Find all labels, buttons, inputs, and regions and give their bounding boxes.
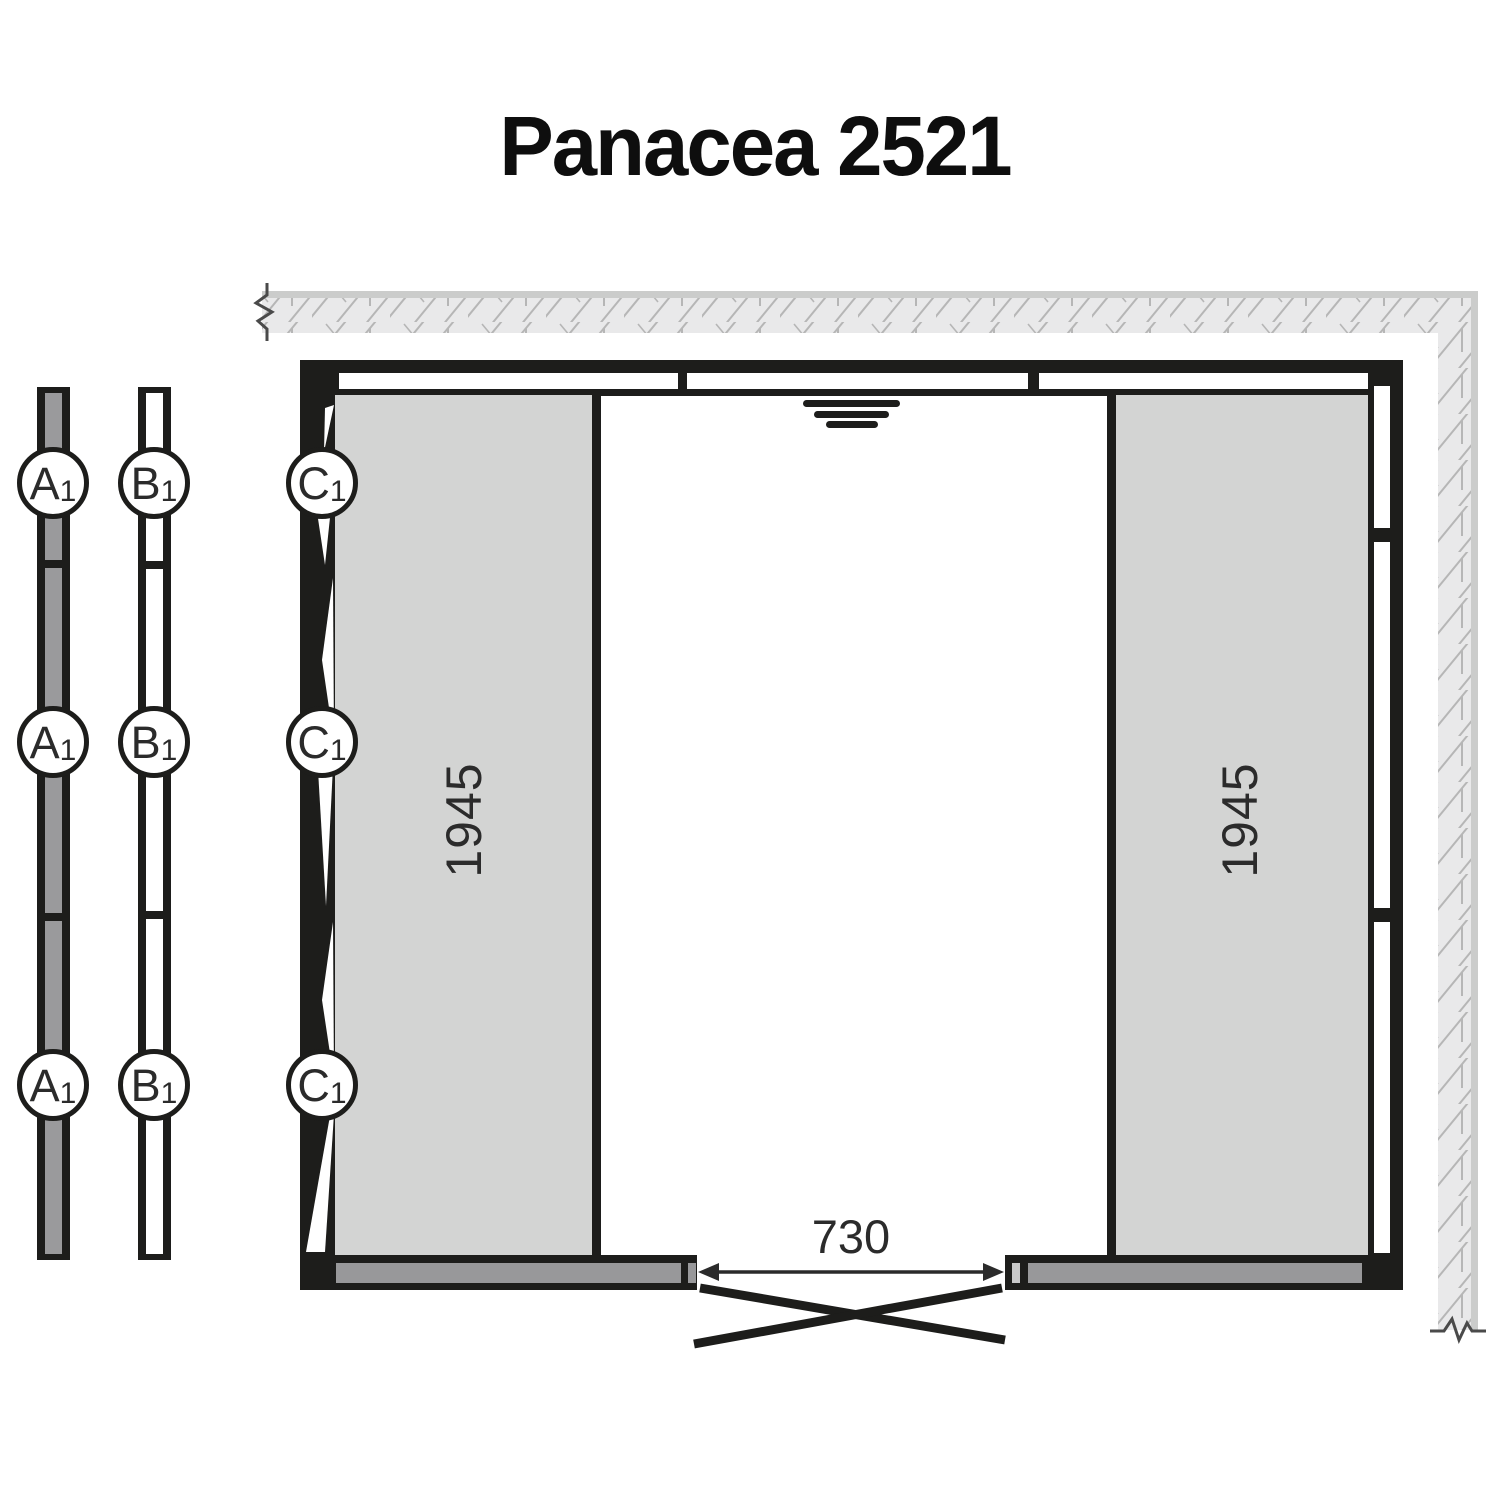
marker-a1-bottom: A1 [17, 1049, 89, 1121]
marker-a1-top: A1 [17, 447, 89, 519]
marker-subscript: 1 [330, 1079, 347, 1109]
marker-b1-middle: B1 [118, 706, 190, 778]
marker-c1-middle: C1 [286, 706, 358, 778]
marker-letter: C [297, 1063, 330, 1108]
door-swing-lines [694, 1288, 1005, 1344]
marker-a1-middle: A1 [17, 706, 89, 778]
marker-letter: B [131, 461, 161, 506]
marker-subscript: 1 [161, 1079, 178, 1109]
existing-wall-top [256, 283, 1478, 341]
marker-subscript: 1 [60, 1079, 77, 1109]
marker-c1-bottom: C1 [286, 1049, 358, 1121]
floor-plan-drawing [0, 0, 1500, 1500]
marker-subscript: 1 [60, 736, 77, 766]
marker-letter: A [30, 720, 60, 765]
existing-wall-right [1430, 295, 1486, 1340]
page-title: Panacea 2521 [23, 98, 1488, 195]
left-panel-depth-label: 1945 [436, 710, 492, 930]
vent-symbol-icon [803, 400, 900, 428]
marker-c1-top: C1 [286, 447, 358, 519]
door-width-label: 730 [751, 1212, 951, 1262]
marker-letter: C [297, 720, 330, 765]
wall-bottom-right [1005, 1255, 1403, 1290]
marker-letter: B [131, 720, 161, 765]
marker-subscript: 1 [60, 477, 77, 507]
marker-subscript: 1 [161, 736, 178, 766]
floor-plan-page: Panacea 2521 A1 A1 A1 B1 B1 B1 C1 C1 C1 … [0, 0, 1500, 1500]
marker-letter: A [30, 461, 60, 506]
marker-b1-top: B1 [118, 447, 190, 519]
marker-subscript: 1 [330, 477, 347, 507]
right-panel-depth-label: 1945 [1212, 710, 1268, 930]
marker-subscript: 1 [330, 736, 347, 766]
marker-subscript: 1 [161, 477, 178, 507]
marker-letter: A [30, 1063, 60, 1108]
marker-letter: B [131, 1063, 161, 1108]
dimension-arrow [698, 1263, 1004, 1281]
wall-bottom-left [300, 1255, 697, 1290]
marker-b1-bottom: B1 [118, 1049, 190, 1121]
marker-letter: C [297, 461, 330, 506]
